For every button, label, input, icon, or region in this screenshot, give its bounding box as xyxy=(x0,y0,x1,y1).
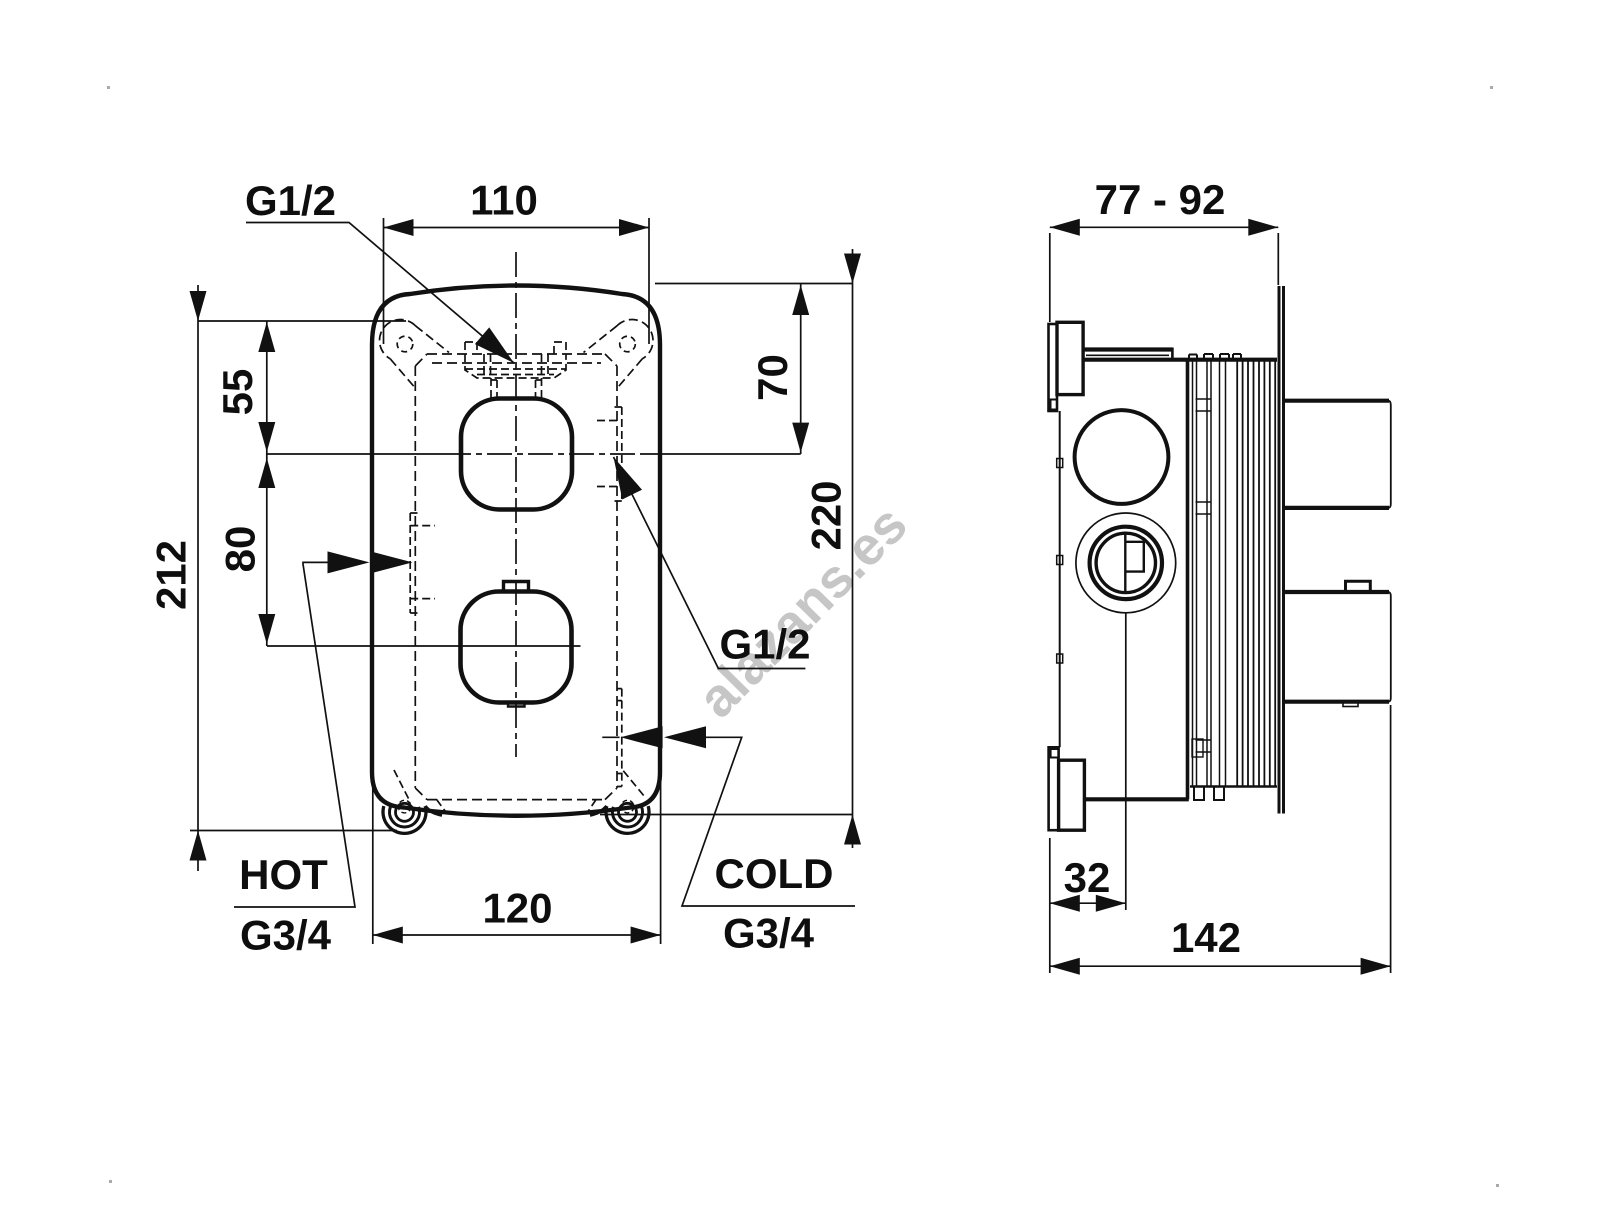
svg-text:120: 120 xyxy=(482,885,552,932)
svg-text:77 - 92: 77 - 92 xyxy=(1095,176,1226,223)
svg-text:COLD: COLD xyxy=(715,850,834,897)
svg-text:G1/2: G1/2 xyxy=(719,620,810,667)
svg-text:G1/2: G1/2 xyxy=(245,177,336,224)
svg-text:G3/4: G3/4 xyxy=(723,910,815,957)
svg-text:220: 220 xyxy=(802,480,849,550)
svg-text:142: 142 xyxy=(1171,914,1241,961)
svg-text:G3/4: G3/4 xyxy=(240,912,332,959)
svg-text:212: 212 xyxy=(148,540,195,610)
svg-text:110: 110 xyxy=(470,177,538,224)
svg-text:70: 70 xyxy=(749,354,796,401)
svg-text:HOT: HOT xyxy=(239,851,328,898)
svg-text:32: 32 xyxy=(1064,854,1111,901)
svg-text:55: 55 xyxy=(214,369,261,416)
svg-text:80: 80 xyxy=(217,526,264,573)
